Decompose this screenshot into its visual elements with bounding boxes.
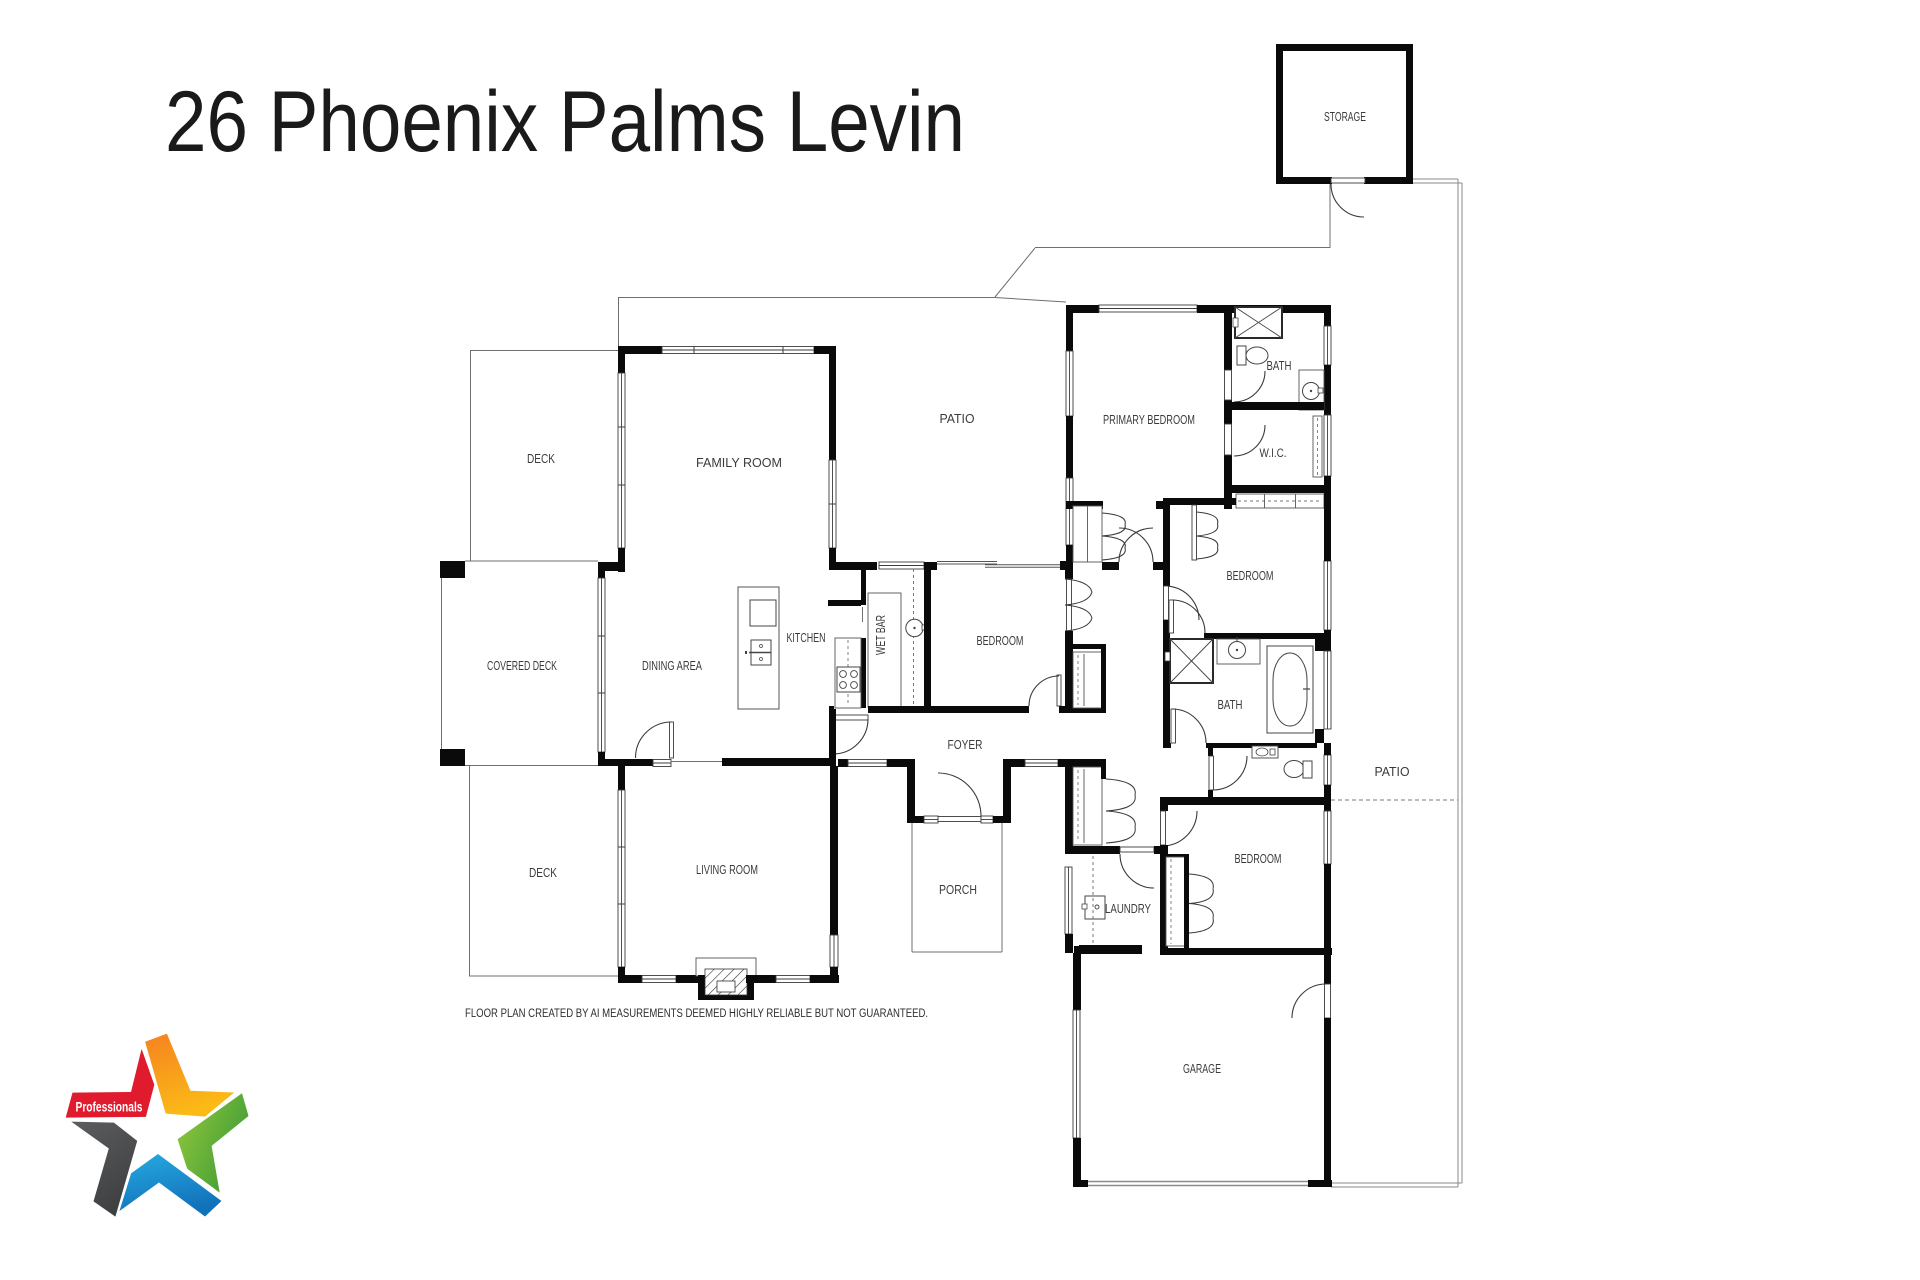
svg-text:DECK: DECK bbox=[527, 451, 555, 466]
svg-text:PATIO: PATIO bbox=[940, 411, 975, 426]
svg-text:PORCH: PORCH bbox=[939, 882, 977, 897]
svg-text:FOYER: FOYER bbox=[948, 737, 983, 752]
svg-text:W.I.C.: W.I.C. bbox=[1260, 446, 1287, 460]
svg-text:BATH: BATH bbox=[1218, 698, 1243, 712]
svg-text:LIVING ROOM: LIVING ROOM bbox=[696, 862, 758, 877]
svg-text:STORAGE: STORAGE bbox=[1324, 110, 1366, 124]
svg-text:LAUNDRY: LAUNDRY bbox=[1105, 902, 1152, 916]
svg-text:BEDROOM: BEDROOM bbox=[977, 633, 1024, 648]
svg-text:DECK: DECK bbox=[529, 865, 557, 880]
svg-text:BEDROOM: BEDROOM bbox=[1227, 568, 1274, 583]
svg-text:KITCHEN: KITCHEN bbox=[787, 630, 826, 645]
svg-text:PATIO: PATIO bbox=[1375, 764, 1410, 779]
svg-text:COVERED DECK: COVERED DECK bbox=[487, 658, 557, 673]
svg-text:BEDROOM: BEDROOM bbox=[1235, 851, 1282, 866]
svg-text:GARAGE: GARAGE bbox=[1183, 1061, 1221, 1076]
svg-text:FAMILY ROOM: FAMILY ROOM bbox=[696, 455, 782, 470]
svg-text:Professionals: Professionals bbox=[76, 1099, 143, 1115]
svg-text:26 Phoenix Palms Levin: 26 Phoenix Palms Levin bbox=[165, 74, 965, 170]
svg-text:FLOOR PLAN CREATED BY AI MEASU: FLOOR PLAN CREATED BY AI MEASUREMENTS DE… bbox=[465, 1006, 928, 1020]
svg-text:BATH: BATH bbox=[1267, 359, 1292, 373]
svg-text:WET BAR: WET BAR bbox=[874, 615, 888, 655]
svg-text:PRIMARY BEDROOM: PRIMARY BEDROOM bbox=[1103, 412, 1195, 427]
svg-text:DINING AREA: DINING AREA bbox=[642, 658, 702, 673]
